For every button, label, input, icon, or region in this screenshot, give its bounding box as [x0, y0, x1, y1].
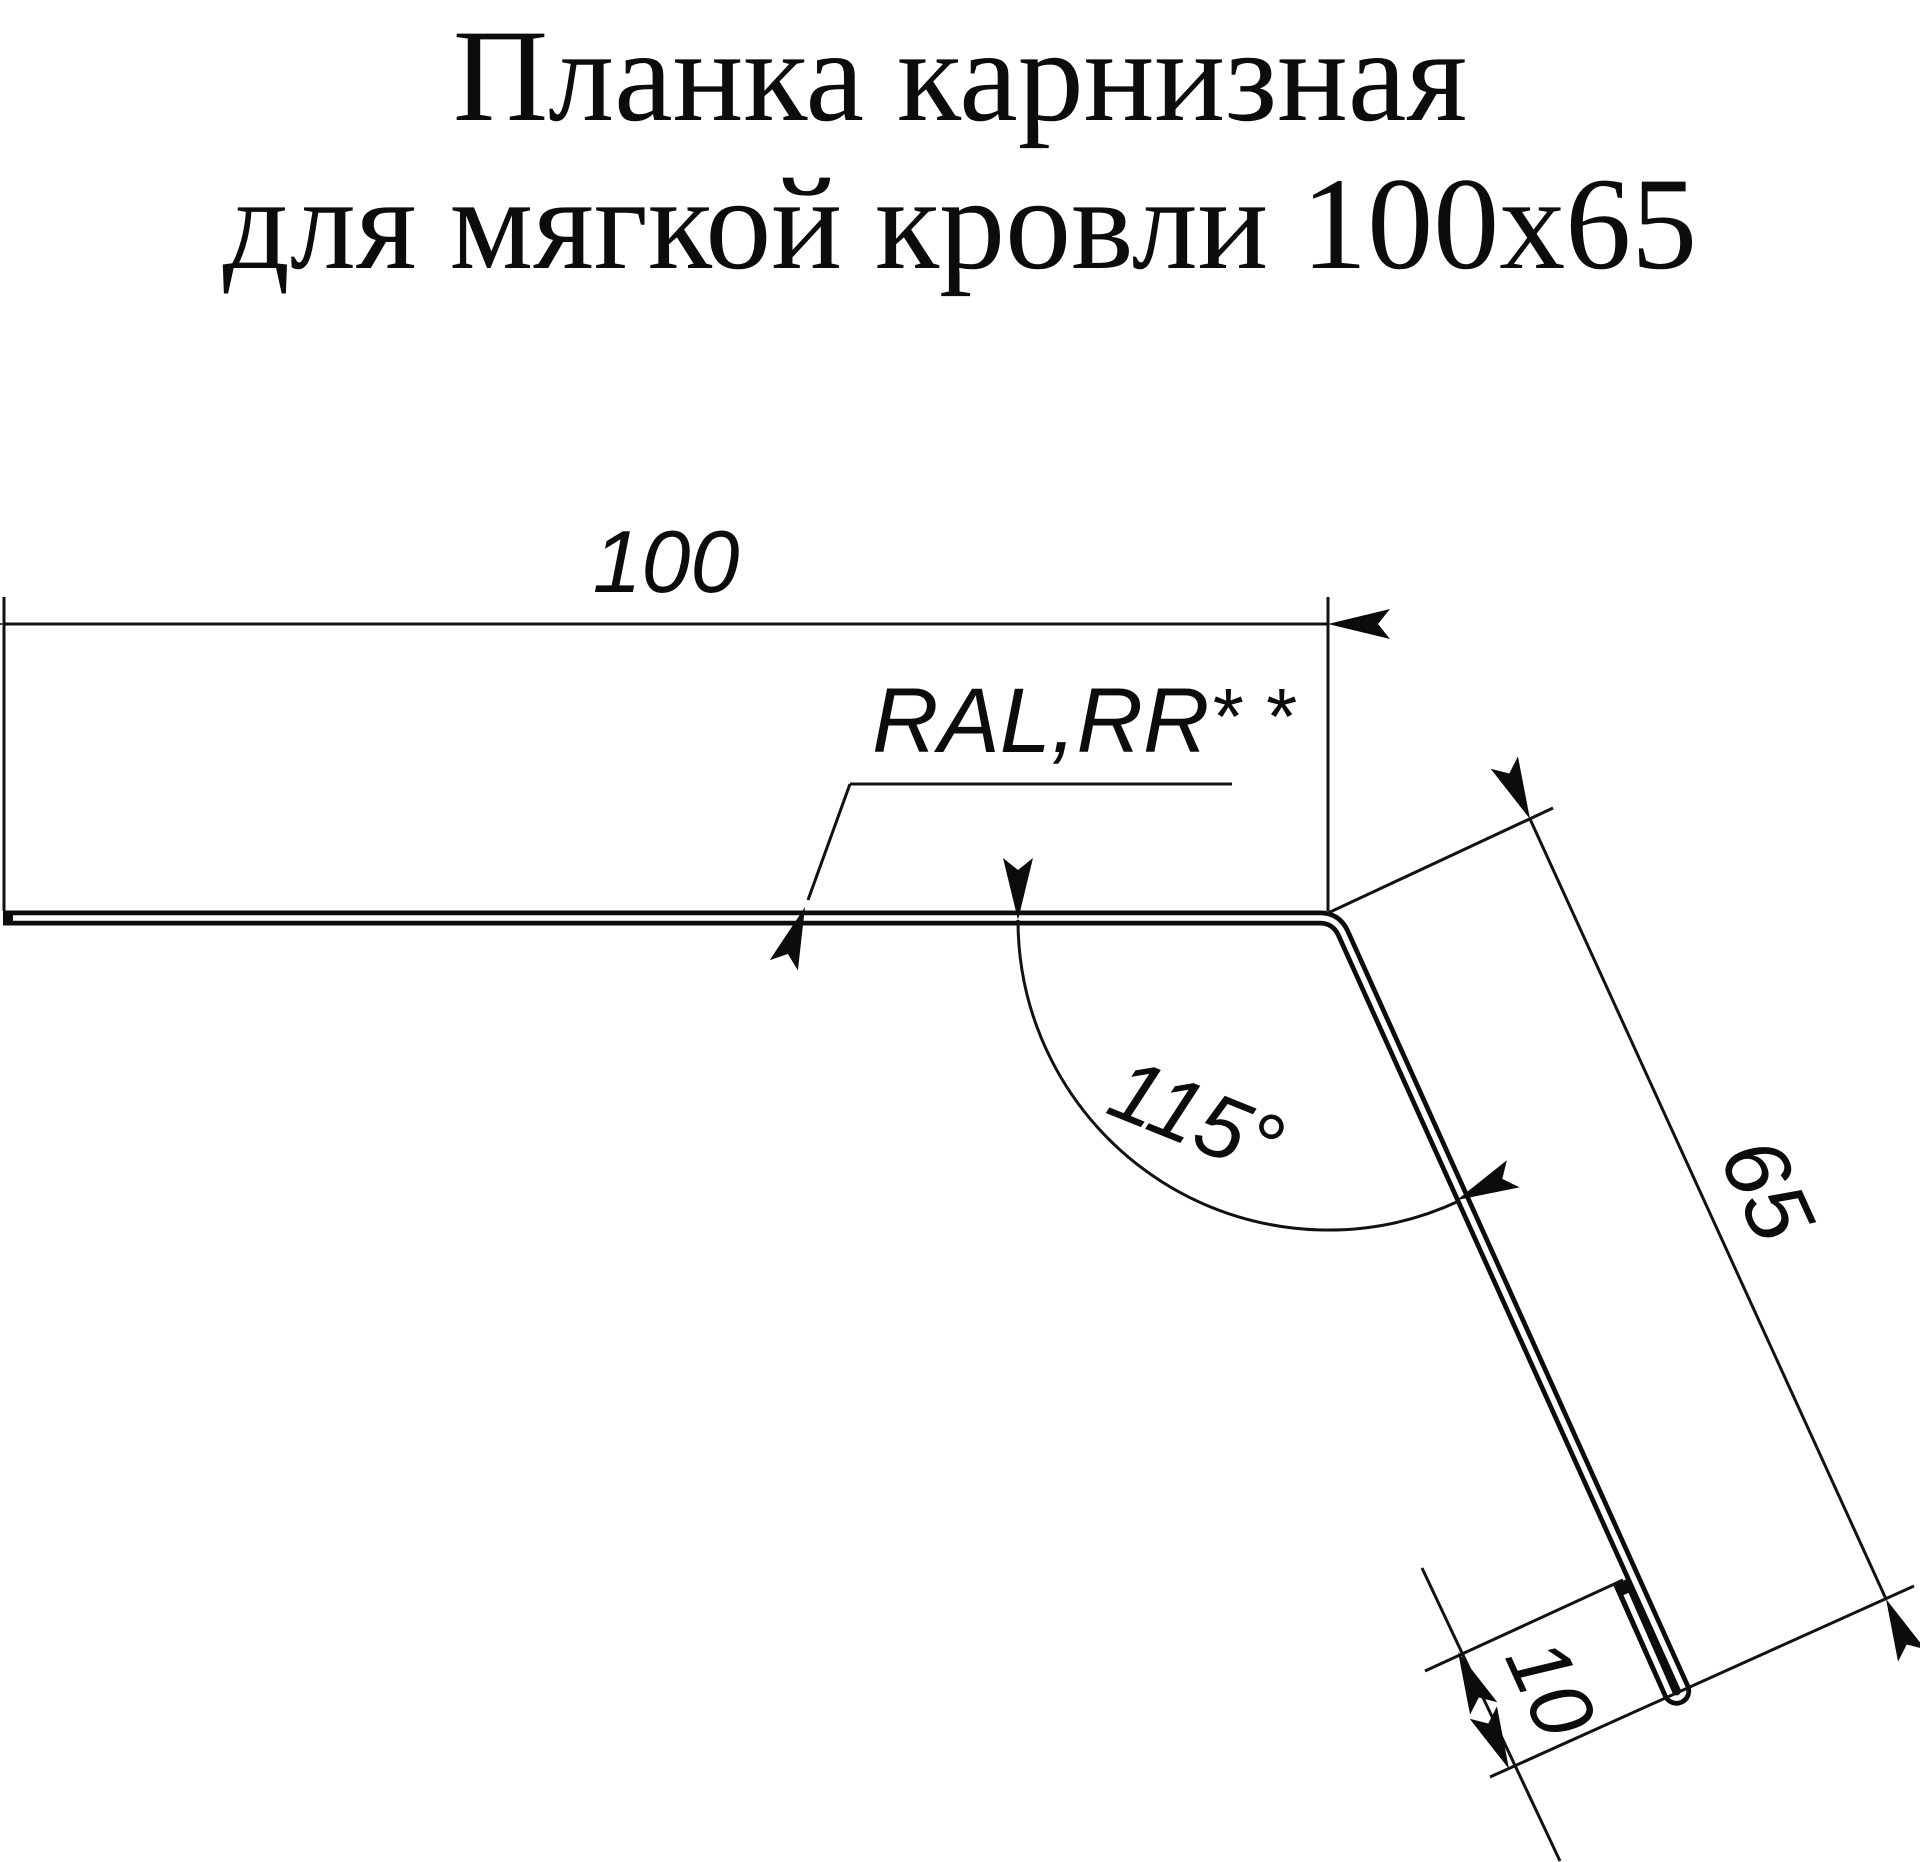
profile-drawing: 100 RAL,RR* * 115° 65 10 — [0, 0, 1920, 1862]
coating-leader-line — [808, 784, 850, 900]
angle-label: 115° — [1097, 1038, 1297, 1196]
dim10-label: 10 — [1487, 1625, 1614, 1752]
dim65-extension-top — [1328, 808, 1553, 913]
dim100-arrow-right-icon — [1328, 609, 1390, 639]
dim10-arrow-upper-icon — [1444, 1646, 1497, 1715]
dim100-label: 100 — [593, 512, 740, 611]
coating-label: RAL,RR* * — [872, 670, 1297, 772]
sheet-profile-thickness-gap — [13, 918, 1684, 1698]
sheet-profile-outline — [3, 918, 1684, 1698]
